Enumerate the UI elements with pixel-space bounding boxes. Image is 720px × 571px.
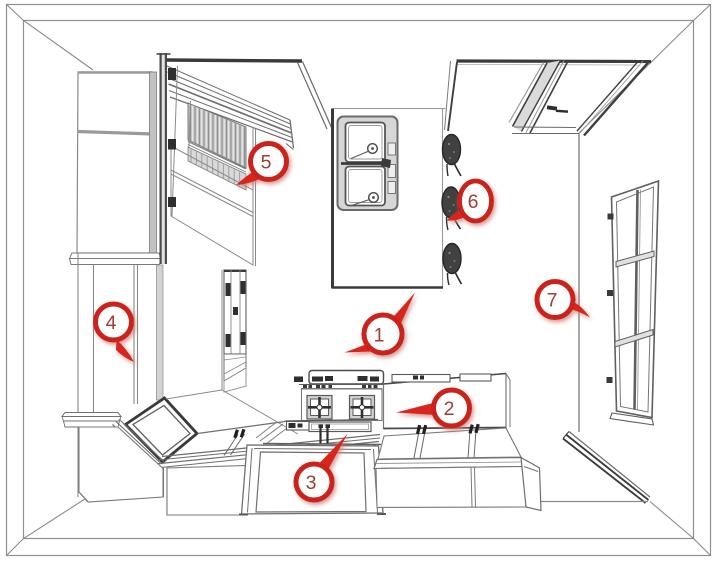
svg-text:5: 5 bbox=[261, 152, 272, 174]
svg-text:1: 1 bbox=[374, 325, 385, 347]
svg-text:3: 3 bbox=[306, 472, 317, 494]
svg-text:7: 7 bbox=[547, 290, 558, 312]
svg-text:4: 4 bbox=[106, 312, 117, 334]
svg-text:2: 2 bbox=[444, 398, 455, 420]
svg-text:6: 6 bbox=[468, 191, 479, 213]
